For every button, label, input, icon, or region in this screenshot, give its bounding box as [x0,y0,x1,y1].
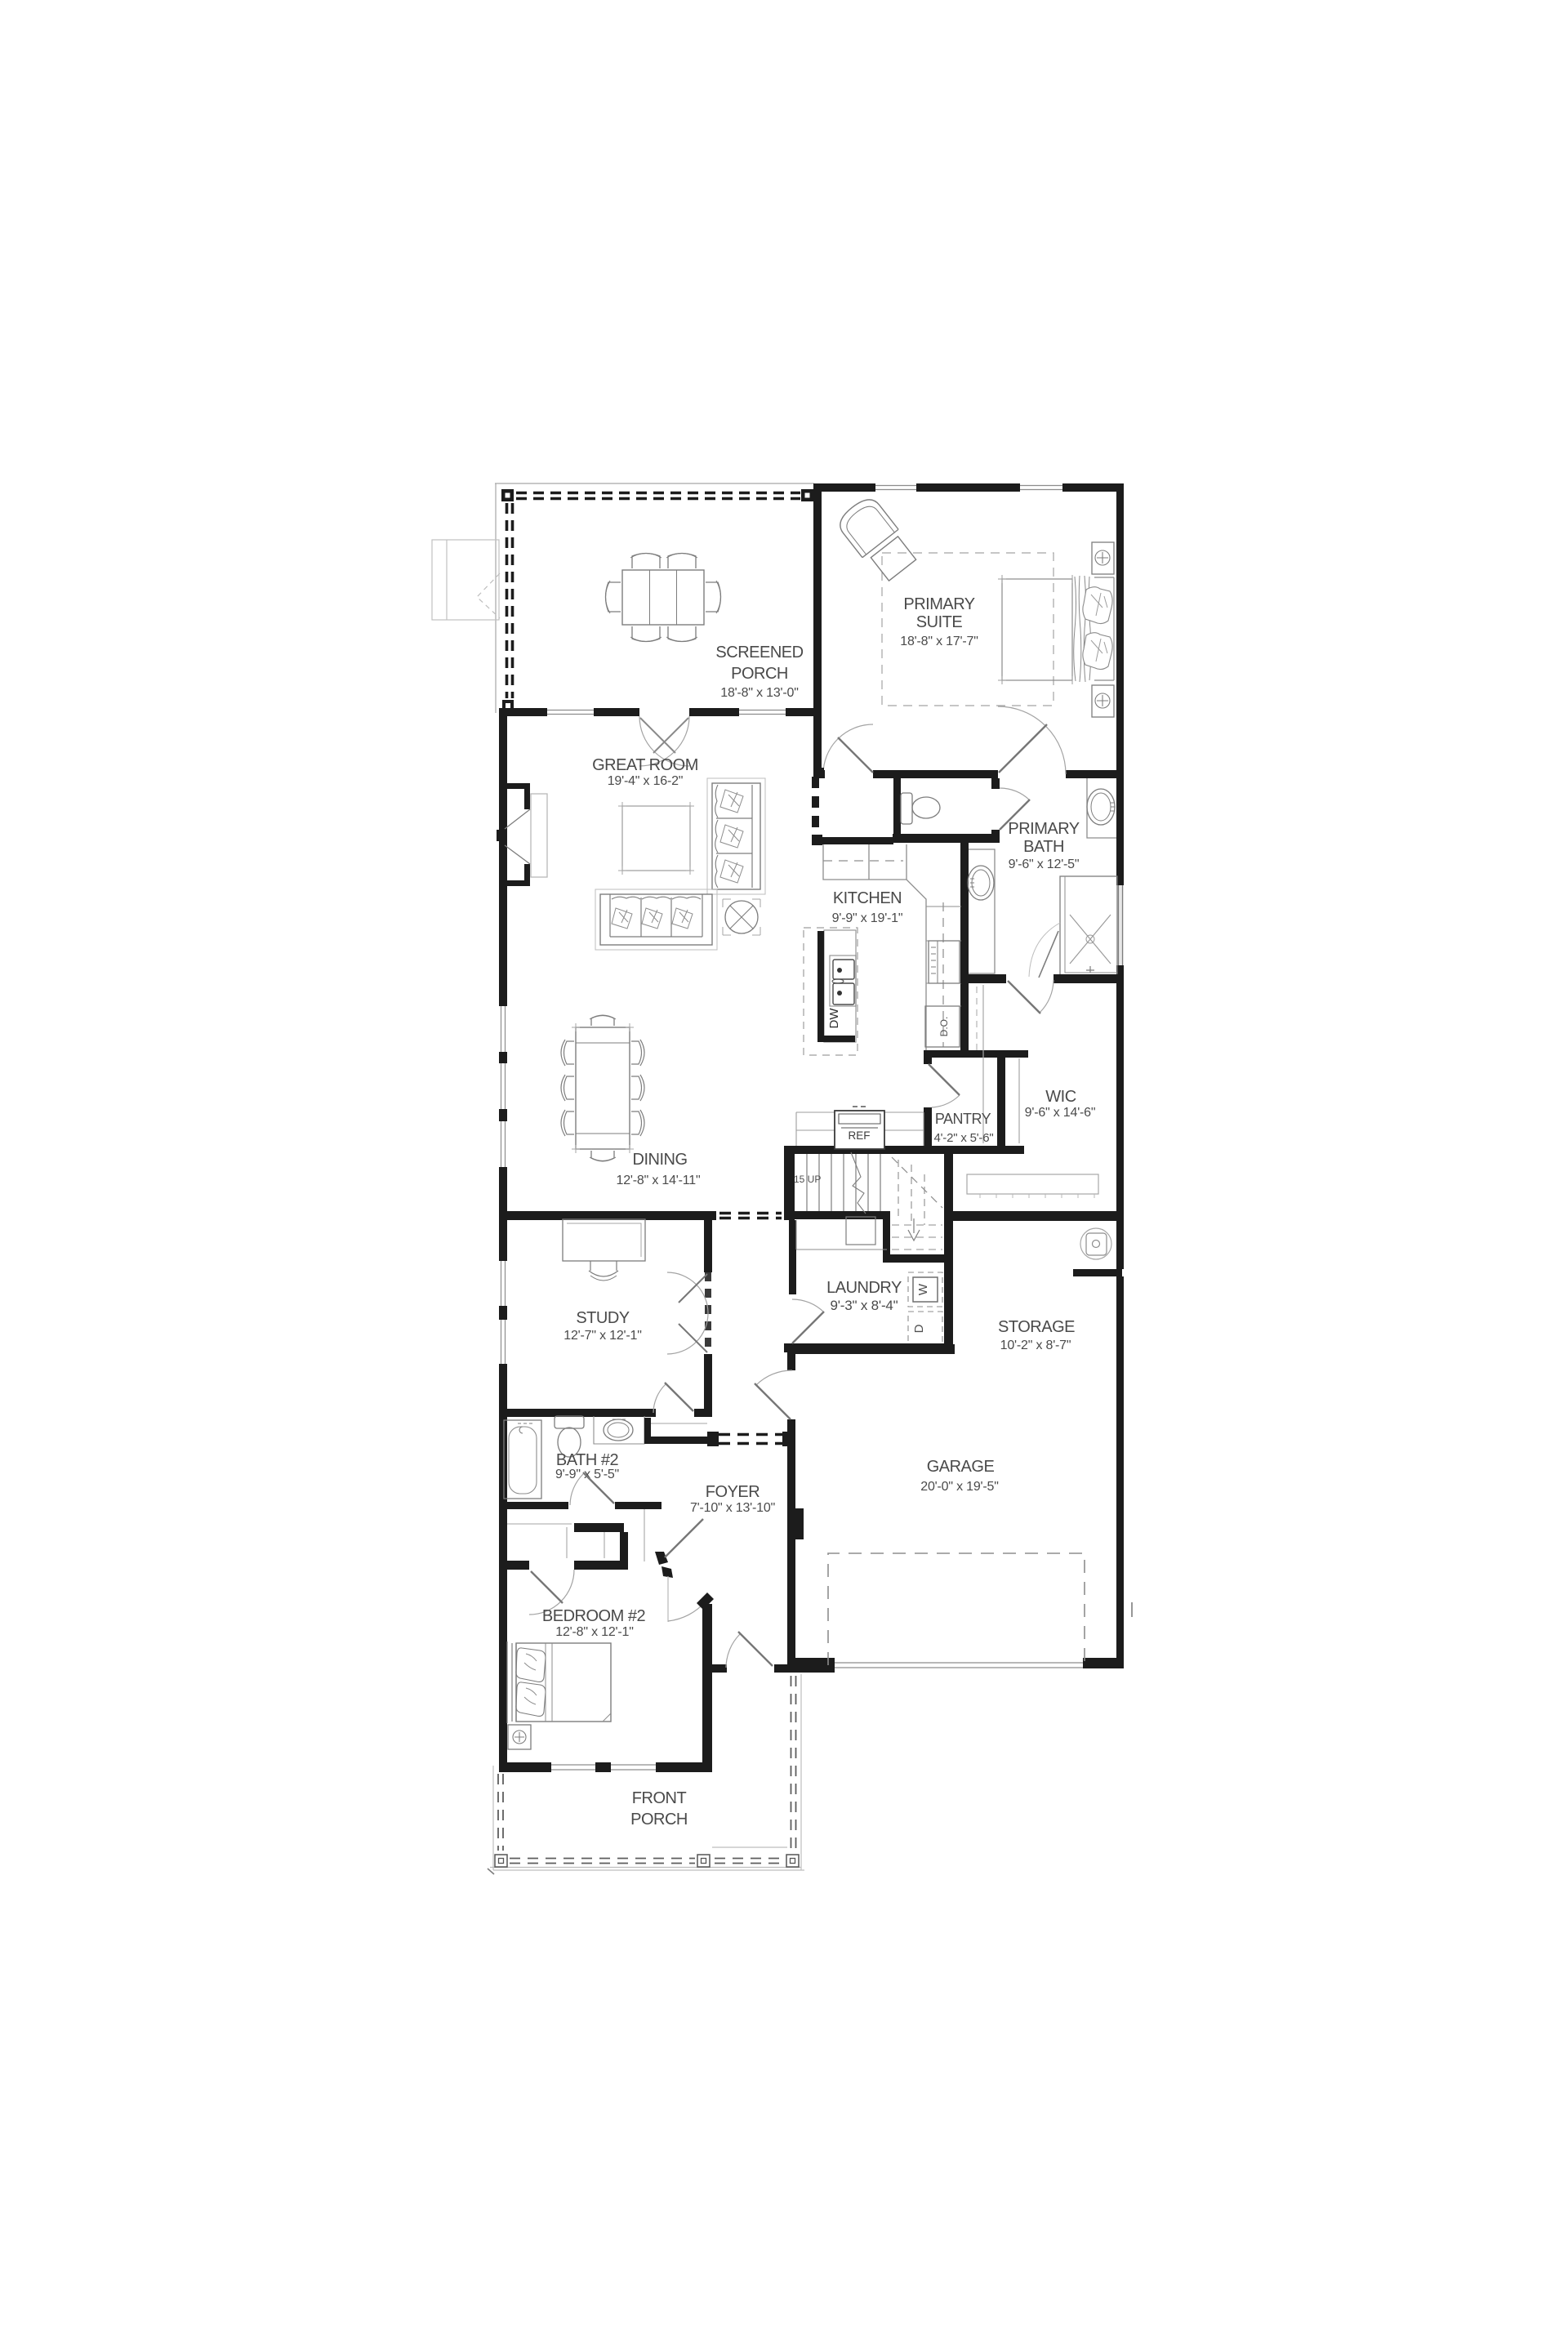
svg-text:W: W [916,1283,930,1295]
svg-text:18'-8" x 13'-0": 18'-8" x 13'-0" [720,686,798,700]
svg-text:9'-9" x 5'-5": 9'-9" x 5'-5" [555,1468,619,1481]
svg-text:STORAGE: STORAGE [998,1318,1075,1336]
svg-text:D: D [912,1324,926,1333]
svg-text:KITCHEN: KITCHEN [833,889,902,907]
svg-text:WIC: WIC [1045,1088,1076,1106]
svg-text:7'-10" x 13'-10": 7'-10" x 13'-10" [690,1501,775,1515]
svg-text:REF: REF [849,1129,871,1142]
svg-text:19'-4" x 16-2": 19'-4" x 16-2" [608,774,684,788]
svg-text:LAUNDRY: LAUNDRY [826,1279,902,1297]
svg-text:GARAGE: GARAGE [927,1458,995,1476]
svg-text:SCREENED: SCREENED [715,644,803,661]
svg-text:STUDY: STUDY [576,1309,629,1327]
svg-text:20'-0" x 19'-5": 20'-0" x 19'-5" [920,1480,998,1494]
svg-text:9'-6" x 12'-5": 9'-6" x 12'-5" [1009,857,1080,871]
svg-text:BEDROOM #2: BEDROOM #2 [542,1607,646,1625]
svg-text:SUITE: SUITE [916,613,963,631]
svg-text:12'-7" x 12'-1": 12'-7" x 12'-1" [563,1329,641,1343]
svg-text:PRIMARY: PRIMARY [903,595,974,613]
svg-text:PRIMARY: PRIMARY [1008,820,1079,838]
svg-text:9'-9" x 19'-1": 9'-9" x 19'-1" [832,911,903,925]
svg-text:18'-8" x 17'-7": 18'-8" x 17'-7" [900,635,978,648]
svg-text:9'-6" x 14'-6": 9'-6" x 14'-6" [1025,1106,1096,1120]
svg-text:15 UP: 15 UP [794,1174,821,1185]
svg-text:BATH #2: BATH #2 [556,1451,619,1469]
svg-text:4'-2" x 5'-6": 4'-2" x 5'-6" [934,1131,994,1145]
svg-text:12'-8" x 14'-11": 12'-8" x 14'-11" [617,1174,701,1187]
svg-text:DINING: DINING [633,1151,688,1169]
svg-text:PANTRY: PANTRY [935,1111,991,1127]
svg-text:10'-2" x 8'-7": 10'-2" x 8'-7" [1000,1339,1071,1352]
svg-text:FOYER: FOYER [706,1483,759,1501]
svg-text:DW: DW [827,1008,841,1029]
svg-text:FRONT: FRONT [632,1789,687,1807]
svg-text:PORCH: PORCH [731,665,788,683]
svg-text:9'-3" x 8'-4": 9'-3" x 8'-4" [830,1298,898,1313]
svg-text:GREAT ROOM: GREAT ROOM [592,756,698,774]
svg-text:12'-8" x 12'-1": 12'-8" x 12'-1" [555,1625,633,1639]
svg-text:D.O.: D.O. [938,1017,950,1037]
svg-text:BATH: BATH [1023,838,1064,856]
svg-text:PORCH: PORCH [630,1811,688,1829]
